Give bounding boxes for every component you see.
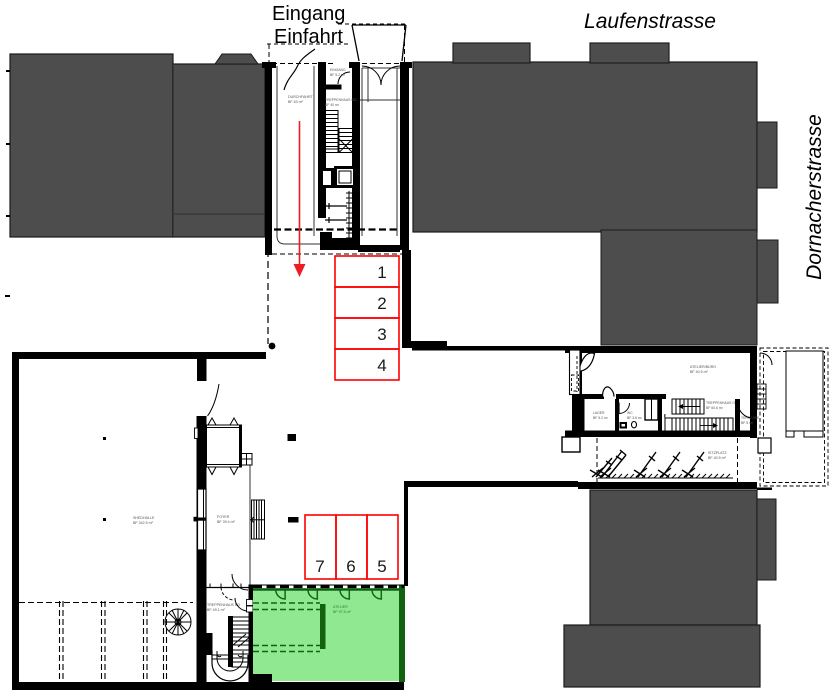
svg-text:BF 40 m²: BF 40 m² bbox=[325, 103, 340, 107]
svg-text:1: 1 bbox=[377, 263, 386, 282]
svg-text:BF 40.5 m²: BF 40.5 m² bbox=[690, 370, 709, 374]
svg-text:BF 49.1 m²: BF 49.1 m² bbox=[207, 608, 226, 612]
svg-text:ATELIER/BÜRO: ATELIER/BÜRO bbox=[690, 365, 716, 369]
svg-text:DURCHFAHRT: DURCHFAHRT bbox=[288, 95, 313, 99]
svg-text:FOYER: FOYER bbox=[217, 515, 230, 519]
svg-text:BF 40.5 m²: BF 40.5 m² bbox=[708, 456, 727, 460]
svg-text:BF 39.4 m²: BF 39.4 m² bbox=[217, 520, 236, 524]
svg-text:Eingang: Eingang bbox=[272, 3, 345, 25]
svg-text:3: 3 bbox=[377, 325, 386, 344]
svg-text:SHEDHALLE: SHEDHALLE bbox=[133, 516, 155, 520]
svg-text:WC: WC bbox=[627, 411, 633, 415]
svg-text:TREPPENHAUS OG: TREPPENHAUS OG bbox=[325, 98, 357, 102]
svg-text:BF 3.6 m²: BF 3.6 m² bbox=[627, 416, 643, 420]
svg-text:BF 60.6 m²: BF 60.6 m² bbox=[706, 406, 724, 410]
svg-text:LAGER: LAGER bbox=[593, 411, 605, 415]
svg-text:6: 6 bbox=[346, 557, 355, 576]
svg-text:2: 2 bbox=[377, 294, 386, 313]
svg-text:BF 5.2 m²: BF 5.2 m² bbox=[593, 416, 609, 420]
svg-text:TREPPENHAUS OG: TREPPENHAUS OG bbox=[706, 401, 738, 405]
svg-text:BF 5 m²: BF 5 m² bbox=[741, 421, 754, 425]
svg-text:BF 63 m²: BF 63 m² bbox=[288, 100, 304, 104]
svg-text:BF 5.2 m²: BF 5.2 m² bbox=[330, 73, 346, 77]
svg-text:EINGANG: EINGANG bbox=[330, 68, 346, 72]
svg-text:ATELIER: ATELIER bbox=[333, 605, 348, 609]
svg-text:7: 7 bbox=[315, 557, 324, 576]
svg-text:Laufenstrasse: Laufenstrasse bbox=[584, 10, 716, 33]
svg-text:BF 97.5 m²: BF 97.5 m² bbox=[333, 610, 352, 614]
svg-text:4: 4 bbox=[377, 356, 386, 375]
svg-text:Dornacherstrasse: Dornacherstrasse bbox=[803, 114, 826, 280]
svg-text:BF 342.5 m²: BF 342.5 m² bbox=[133, 521, 154, 525]
svg-text:SITZPLATZ: SITZPLATZ bbox=[708, 451, 728, 455]
svg-text:Einfahrt: Einfahrt bbox=[274, 26, 343, 48]
svg-text:5: 5 bbox=[377, 557, 386, 576]
svg-text:TREPPENHAUS EG: TREPPENHAUS EG bbox=[207, 603, 240, 607]
